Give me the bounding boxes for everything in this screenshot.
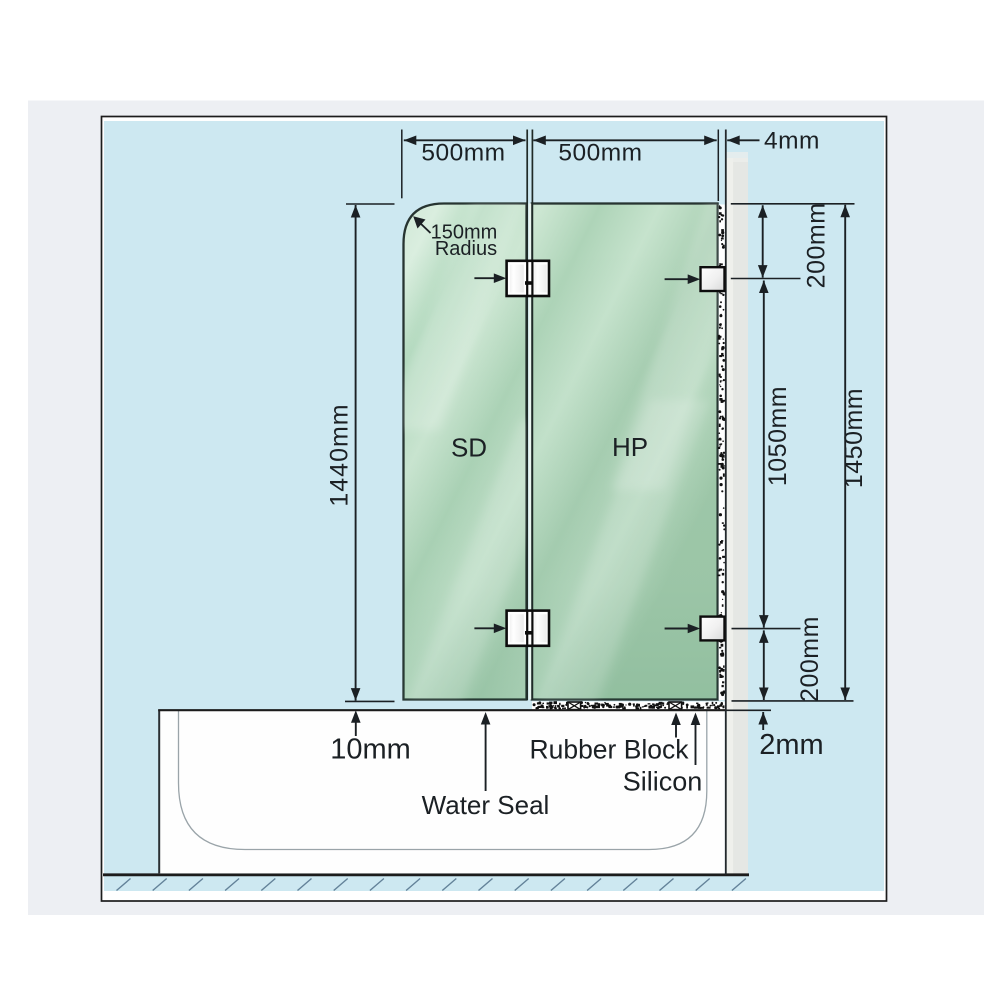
svg-text:Rubber Block: Rubber Block (529, 735, 689, 765)
svg-text:500mm: 500mm (558, 140, 642, 167)
svg-text:1450mm: 1450mm (840, 388, 868, 488)
svg-text:500mm: 500mm (421, 140, 505, 167)
svg-text:HP: HP (612, 432, 648, 462)
svg-text:4mm: 4mm (764, 128, 820, 155)
svg-text:1050mm: 1050mm (764, 386, 792, 486)
svg-text:SD: SD (451, 433, 487, 463)
svg-text:Water Seal: Water Seal (422, 790, 550, 820)
svg-text:Radius: Radius (435, 238, 497, 260)
svg-text:2mm: 2mm (759, 729, 823, 761)
svg-text:200mm: 200mm (796, 616, 824, 702)
svg-text:10mm: 10mm (330, 734, 411, 766)
svg-text:1440mm: 1440mm (326, 403, 354, 506)
svg-text:Silicon: Silicon (623, 767, 703, 797)
svg-text:200mm: 200mm (803, 202, 831, 288)
